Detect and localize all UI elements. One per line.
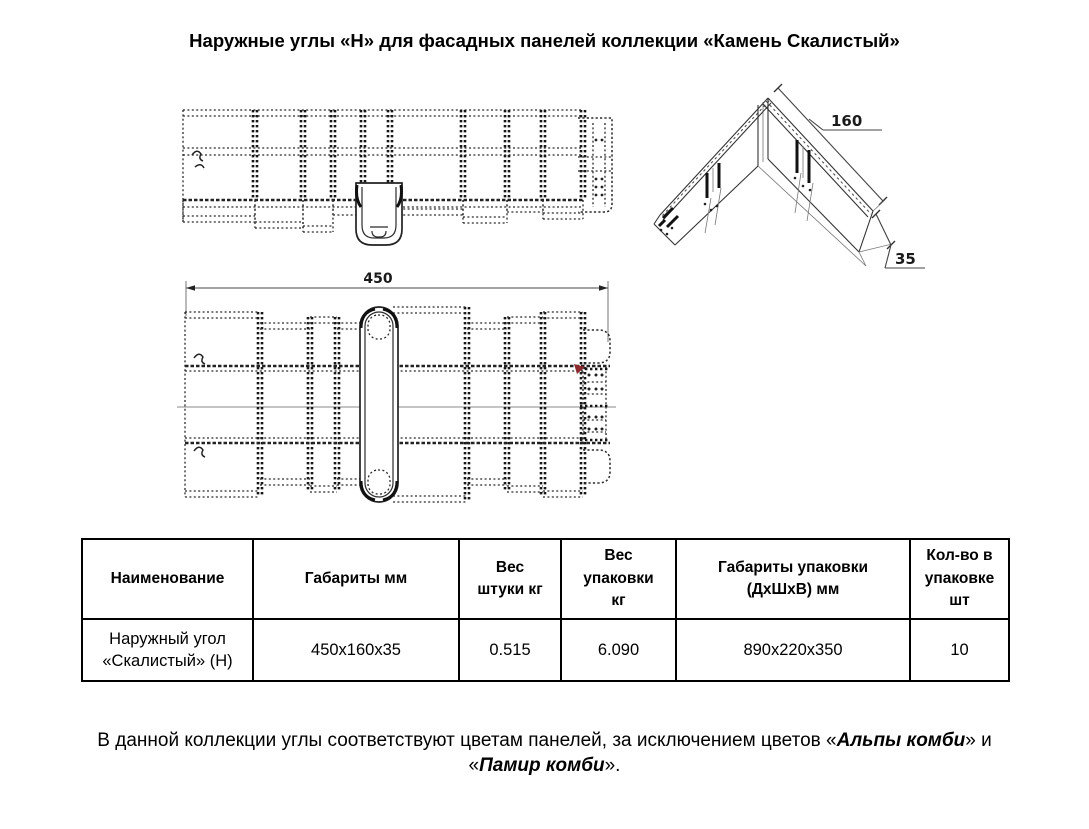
iso-dimension-160: 160 bbox=[774, 84, 887, 205]
col-header-name: Наименование bbox=[82, 539, 253, 619]
col-header-pack-dimensions: Габариты упаковки (ДхШхВ) мм bbox=[676, 539, 910, 619]
cell-pack-weight: 6.090 bbox=[561, 619, 676, 681]
note-part2: » и bbox=[965, 730, 991, 751]
col-header-pack-qty: Кол-во в упаковке шт bbox=[910, 539, 1009, 619]
page-title: Наружные углы «Н» для фасадных панелей к… bbox=[0, 30, 1089, 52]
front-view-right-connector bbox=[578, 118, 612, 212]
spec-table-header-row: Наименование Габариты мм Вес штуки кг Ве… bbox=[82, 539, 1009, 619]
plan-view-drawing: 450 bbox=[175, 262, 620, 517]
note-part3: « bbox=[469, 755, 480, 776]
cell-unit-weight: 0.515 bbox=[459, 619, 561, 681]
note-part1: В данной коллекции углы соответствуют цв… bbox=[97, 730, 836, 751]
front-view-drawing bbox=[175, 95, 620, 260]
cell-dimensions: 450х160х35 bbox=[253, 619, 459, 681]
iso-dim-35-label: 35 bbox=[895, 250, 916, 268]
note-part4: ». bbox=[605, 755, 621, 776]
note-text: В данной коллекции углы соответствуют цв… bbox=[0, 728, 1089, 778]
note-color-alpy-kombi: Альпы комби bbox=[837, 730, 966, 751]
note-color-pamir-kombi: Памир комби bbox=[479, 755, 604, 776]
cell-pack-qty: 10 bbox=[910, 619, 1009, 681]
iso-dim-160-label: 160 bbox=[831, 112, 862, 130]
spec-table-data-row: Наружный угол «Скалистый» (Н) 450х160х35… bbox=[82, 619, 1009, 681]
front-view-marks bbox=[192, 151, 204, 168]
plan-dim-450-label: 450 bbox=[363, 271, 392, 287]
document-page: Наружные углы «Н» для фасадных панелей к… bbox=[0, 0, 1089, 829]
iso-dimension-35: 35 bbox=[859, 200, 925, 268]
col-header-unit-weight: Вес штуки кг bbox=[459, 539, 561, 619]
cell-name: Наружный угол «Скалистый» (Н) bbox=[82, 619, 253, 681]
front-view-nail-tab bbox=[356, 183, 402, 245]
iso-view-drawing: 160 35 bbox=[645, 78, 945, 278]
plan-marks bbox=[194, 354, 205, 457]
cell-pack-dimensions: 890х220х350 bbox=[676, 619, 910, 681]
plan-nail-slot bbox=[360, 307, 398, 502]
spec-table: Наименование Габариты мм Вес штуки кг Ве… bbox=[81, 538, 1010, 682]
col-header-pack-weight: Вес упаковки кг bbox=[561, 539, 676, 619]
iso-left-arm bbox=[654, 98, 771, 245]
col-header-dimensions: Габариты мм bbox=[253, 539, 459, 619]
